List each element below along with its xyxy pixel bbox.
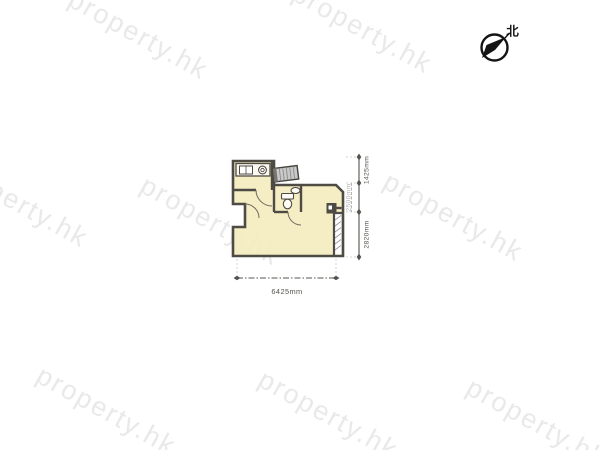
- ac-unit-icon: [327, 203, 337, 214]
- dimension-label-right-top: 1425mm: [364, 156, 371, 184]
- north-label: 北: [506, 24, 519, 39]
- compass-icon: 北: [482, 24, 520, 61]
- kitchen-counter: [236, 164, 270, 177]
- ac-platform: [273, 166, 299, 182]
- toilet-tank-icon: [282, 194, 294, 200]
- floor-plan-svg: 1425mm 2500mm 2820mm 6425mm 北: [0, 0, 600, 450]
- toilet-bowl-icon: [283, 199, 291, 209]
- dimension-line-bottom: 6425mm: [234, 259, 340, 296]
- dimension-label-right-middle: 2500mm: [346, 183, 353, 211]
- dimension-line-right: 1425mm 2500mm 2820mm: [346, 154, 371, 261]
- dimension-label-right-bottom: 2820mm: [364, 220, 371, 248]
- dimension-label-bottom: 6425mm: [271, 287, 302, 296]
- stove-burner-icon: [259, 166, 267, 174]
- bay-window: [334, 213, 342, 256]
- floorplan-image: property.hk property.hk property.hk prop…: [0, 0, 600, 450]
- sink-icon: [291, 188, 300, 194]
